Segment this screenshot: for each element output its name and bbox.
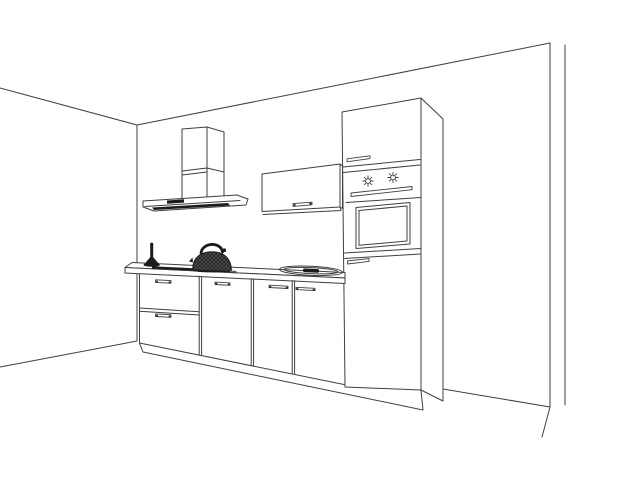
tall-cabinet-side (421, 98, 443, 401)
pepper-mill (144, 243, 161, 267)
hood-duct-front (182, 127, 207, 203)
drawer-gap-lines (140, 308, 200, 315)
room-walls (0, 43, 565, 437)
drawer-handle-bottom (156, 314, 172, 317)
kettle-spout (189, 258, 193, 263)
right-wall-corner (542, 43, 550, 437)
ceiling-edge (0, 43, 550, 125)
base-door-handle-3 (296, 287, 315, 290)
wall-cabinet (262, 164, 343, 215)
floor-line (443, 389, 550, 407)
drawer-handle-top (156, 280, 172, 283)
tall-oven-cabinet (342, 98, 443, 401)
base-divider-2 (251, 279, 253, 366)
range-hood (143, 127, 248, 211)
base-bottom-edge (140, 343, 345, 385)
base-door-handle-1 (215, 282, 230, 285)
kettle (189, 244, 231, 272)
sink-drain (303, 268, 319, 272)
kitchen-line-drawing (0, 0, 640, 480)
base-divider-3 (292, 281, 294, 375)
left-wall-corner (0, 125, 137, 367)
base-divider-1 (199, 276, 201, 355)
kitchen-illustration (0, 0, 640, 480)
kettle-knob (223, 248, 227, 252)
kettle-body (193, 252, 232, 272)
hood-duct-side (207, 127, 224, 205)
base-door-handle-2 (269, 285, 288, 288)
